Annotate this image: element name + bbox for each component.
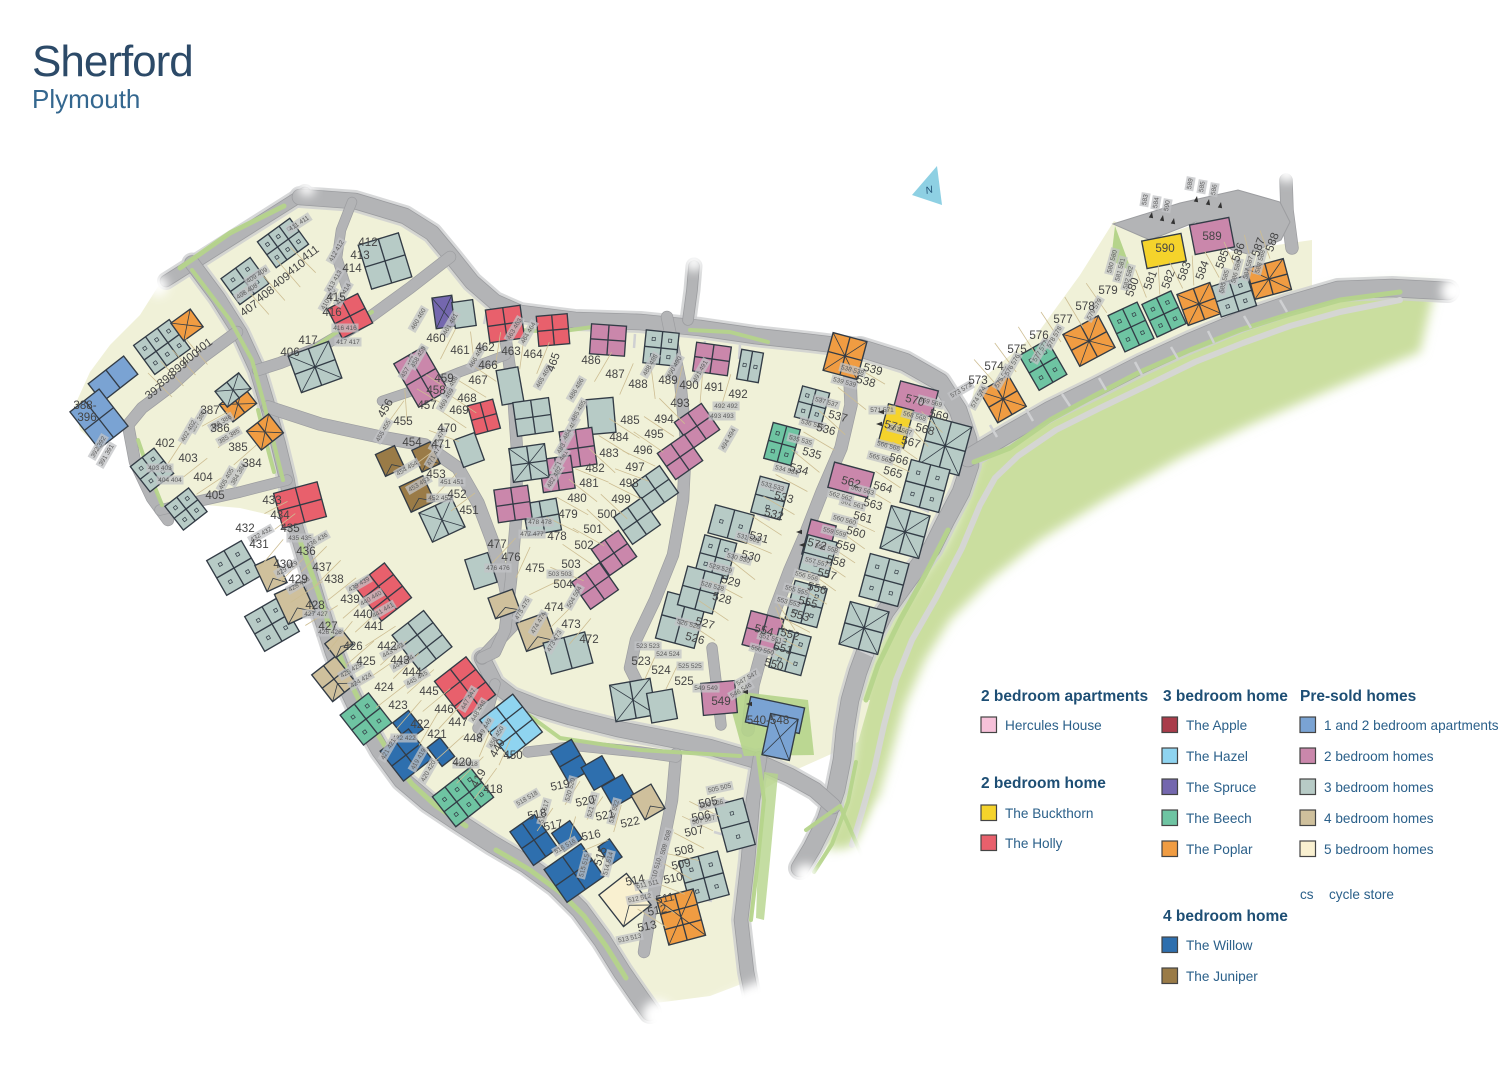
svg-text:469: 469 [449, 404, 468, 417]
svg-text:477 477: 477 477 [520, 531, 544, 538]
svg-text:463: 463 [501, 345, 520, 358]
svg-text:The Buckthorn: The Buckthorn [1005, 806, 1093, 821]
svg-text:406: 406 [280, 346, 299, 359]
svg-text:The Apple: The Apple [1186, 718, 1247, 733]
svg-text:498: 498 [619, 477, 638, 490]
svg-text:428: 428 [305, 599, 324, 612]
svg-text:502: 502 [574, 539, 593, 552]
svg-text:414: 414 [342, 262, 362, 275]
svg-text:523: 523 [631, 655, 650, 668]
svg-text:464: 464 [523, 348, 543, 361]
svg-text:426: 426 [343, 640, 362, 653]
svg-text:416 416: 416 416 [333, 325, 357, 332]
svg-text:423: 423 [388, 699, 407, 712]
svg-text:454: 454 [402, 436, 422, 449]
svg-text:417 417: 417 417 [336, 339, 360, 346]
svg-text:The Willow: The Willow [1186, 938, 1253, 953]
svg-text:476 476: 476 476 [486, 565, 510, 572]
svg-text:589: 589 [1202, 230, 1221, 243]
svg-text:432: 432 [235, 522, 254, 535]
svg-text:452: 452 [447, 488, 466, 501]
svg-text:524 524: 524 524 [656, 651, 680, 658]
svg-text:482: 482 [585, 462, 604, 475]
svg-text:577: 577 [1053, 313, 1072, 326]
svg-text:3 bedroom home: 3 bedroom home [1163, 688, 1288, 705]
svg-text:574: 574 [984, 360, 1004, 373]
svg-text:500: 500 [597, 508, 616, 521]
svg-text:2 bedroom homes: 2 bedroom homes [1324, 749, 1434, 764]
svg-text:489: 489 [658, 374, 677, 387]
svg-text:575: 575 [1007, 343, 1026, 356]
svg-text:4 bedroom homes: 4 bedroom homes [1324, 811, 1434, 826]
svg-text:578: 578 [1075, 300, 1094, 313]
svg-text:405: 405 [205, 489, 224, 502]
svg-text:438: 438 [324, 573, 343, 586]
svg-text:462: 462 [475, 341, 494, 354]
svg-text:525 525: 525 525 [678, 663, 702, 670]
svg-text:435: 435 [280, 522, 299, 535]
svg-text:The Holly: The Holly [1005, 836, 1063, 851]
svg-text:5 bedroom homes: 5 bedroom homes [1324, 842, 1434, 857]
svg-text:cs: cs [1300, 887, 1314, 902]
svg-text:451: 451 [459, 504, 478, 517]
svg-text:503: 503 [561, 558, 580, 571]
svg-text:427 427: 427 427 [304, 611, 328, 618]
svg-text:1 and 2 bedroom apartments: 1 and 2 bedroom apartments [1324, 718, 1499, 733]
svg-text:488: 488 [628, 378, 647, 391]
svg-text:549 549: 549 549 [694, 685, 718, 692]
svg-text:384: 384 [242, 457, 262, 470]
svg-text:496: 496 [633, 444, 652, 457]
svg-text:403: 403 [178, 452, 197, 465]
svg-text:The Beech: The Beech [1186, 811, 1252, 826]
svg-text:461: 461 [450, 344, 469, 357]
svg-text:504: 504 [553, 578, 573, 591]
svg-text:478: 478 [547, 530, 566, 543]
svg-text:467: 467 [468, 374, 487, 387]
svg-text:430: 430 [273, 558, 292, 571]
svg-text:501: 501 [583, 523, 602, 536]
svg-text:457: 457 [417, 399, 436, 412]
svg-text:445: 445 [419, 685, 438, 698]
svg-text:487: 487 [605, 368, 624, 381]
svg-text:2 bedroom home: 2 bedroom home [981, 775, 1106, 792]
svg-text:412: 412 [358, 236, 377, 249]
svg-text:387: 387 [200, 404, 219, 417]
svg-text:447: 447 [448, 716, 467, 729]
svg-text:473: 473 [561, 618, 580, 631]
svg-text:458: 458 [426, 384, 445, 397]
svg-text:486: 486 [581, 354, 600, 367]
svg-text:470: 470 [437, 422, 456, 435]
svg-text:525: 525 [674, 675, 693, 688]
svg-text:444: 444 [402, 666, 422, 679]
svg-text:450: 450 [503, 749, 522, 762]
svg-text:4 bedroom home: 4 bedroom home [1163, 908, 1288, 925]
svg-text:442: 442 [377, 640, 396, 653]
svg-text:The Poplar: The Poplar [1186, 842, 1253, 857]
svg-text:477: 477 [487, 538, 506, 551]
svg-text:439: 439 [340, 593, 359, 606]
svg-text:424: 424 [374, 681, 394, 694]
svg-text:493 493: 493 493 [710, 413, 734, 420]
svg-text:429: 429 [288, 573, 307, 586]
svg-text:cycle store: cycle store [1329, 887, 1394, 902]
svg-text:425: 425 [356, 655, 375, 668]
svg-text:460: 460 [426, 332, 445, 345]
svg-text:Plymouth: Plymouth [32, 84, 140, 114]
svg-text:Sherford: Sherford [32, 37, 193, 86]
svg-text:490: 490 [679, 379, 698, 392]
svg-text:472: 472 [579, 633, 598, 646]
svg-text:475: 475 [525, 562, 544, 575]
svg-text:420: 420 [452, 756, 471, 769]
svg-text:471: 471 [431, 438, 450, 451]
svg-text:The Hazel: The Hazel [1186, 749, 1248, 764]
svg-text:466: 466 [478, 359, 497, 372]
svg-text:492 492: 492 492 [714, 403, 738, 410]
svg-text:448: 448 [463, 732, 482, 745]
svg-text:3 bedroom homes: 3 bedroom homes [1324, 780, 1434, 795]
svg-text:402: 402 [155, 437, 174, 450]
svg-text:427: 427 [318, 620, 337, 633]
svg-text:403 403: 403 403 [148, 465, 172, 472]
svg-text:491: 491 [704, 381, 723, 394]
svg-text:459: 459 [434, 372, 453, 385]
svg-text:476: 476 [501, 551, 520, 564]
svg-text:485: 485 [620, 414, 639, 427]
svg-text:453: 453 [426, 468, 445, 481]
svg-text:540-548: 540-548 [747, 714, 790, 727]
svg-text:2 bedroom apartments: 2 bedroom apartments [981, 688, 1148, 705]
svg-text:441: 441 [364, 620, 383, 633]
svg-text:436: 436 [296, 545, 315, 558]
svg-text:480: 480 [567, 492, 586, 505]
svg-text:418: 418 [483, 783, 502, 796]
svg-text:431: 431 [249, 538, 268, 551]
svg-text:385: 385 [228, 441, 247, 454]
svg-text:446: 446 [434, 703, 453, 716]
svg-text:503 503: 503 503 [548, 571, 572, 578]
svg-text:415: 415 [326, 291, 345, 304]
svg-text:Hercules House: Hercules House [1005, 718, 1102, 733]
svg-text:404: 404 [193, 471, 213, 484]
svg-text:523 523: 523 523 [636, 643, 660, 650]
svg-text:Pre-sold homes: Pre-sold homes [1300, 688, 1416, 705]
svg-text:396: 396 [77, 411, 96, 424]
svg-text:455: 455 [393, 415, 412, 428]
svg-text:422: 422 [410, 718, 429, 731]
svg-text:434: 434 [270, 509, 290, 522]
svg-text:478 478: 478 478 [528, 519, 552, 526]
svg-text:483: 483 [599, 447, 618, 460]
svg-text:579: 579 [1098, 284, 1117, 297]
svg-text:484: 484 [609, 431, 629, 444]
svg-text:497: 497 [625, 461, 644, 474]
svg-text:416: 416 [322, 306, 341, 319]
svg-text:481: 481 [579, 477, 598, 490]
svg-text:413: 413 [350, 249, 369, 262]
svg-text:The Juniper: The Juniper [1186, 969, 1258, 984]
svg-text:524: 524 [651, 664, 671, 677]
svg-text:479: 479 [558, 508, 577, 521]
svg-text:576: 576 [1029, 329, 1048, 342]
svg-text:590: 590 [1155, 242, 1174, 255]
svg-text:The Spruce: The Spruce [1186, 780, 1256, 795]
svg-text:495: 495 [644, 428, 663, 441]
svg-text:417: 417 [298, 334, 317, 347]
svg-text:474: 474 [544, 601, 564, 614]
svg-text:494: 494 [654, 413, 674, 426]
svg-text:549: 549 [711, 695, 730, 708]
svg-text:404 404: 404 404 [158, 477, 182, 484]
svg-text:499: 499 [611, 493, 630, 506]
svg-text:493: 493 [670, 397, 689, 410]
svg-text:421: 421 [427, 728, 446, 741]
svg-text:573: 573 [968, 374, 987, 387]
svg-text:386: 386 [210, 422, 229, 435]
svg-text:433: 433 [262, 494, 281, 507]
svg-text:492: 492 [728, 388, 747, 401]
